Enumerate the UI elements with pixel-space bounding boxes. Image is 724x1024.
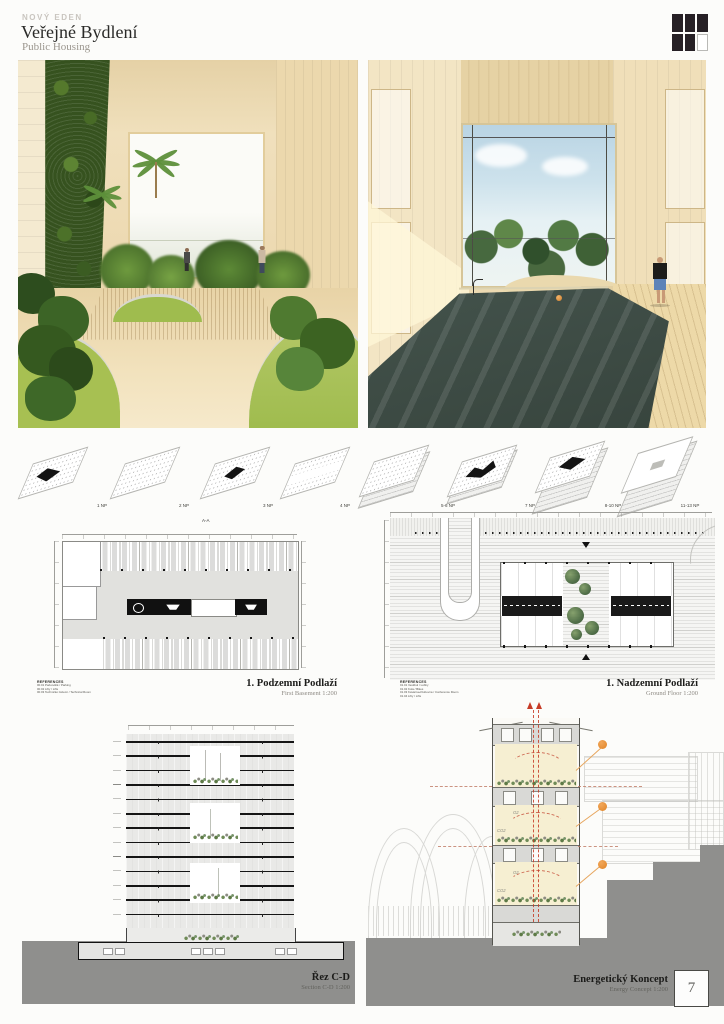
axon-floor-7 <box>435 448 525 506</box>
axon-label: 7 NP <box>525 503 535 508</box>
axon-floor-3 <box>188 450 278 508</box>
co2-label: CO2 <box>497 888 506 893</box>
o2-label: O2 <box>513 810 519 815</box>
person-figure <box>258 246 267 274</box>
render-atrium-garden <box>18 60 358 428</box>
palm-tree <box>100 192 126 222</box>
core-block <box>611 596 671 616</box>
section-title: Řez C-D <box>200 972 350 983</box>
axon-floor-5-6 <box>347 448 437 506</box>
dimension-line <box>62 534 297 539</box>
energy-node-marker <box>598 740 607 749</box>
dimension-line <box>301 541 306 668</box>
section-subtitle: Section C-D 1:200 <box>200 984 350 991</box>
axon-label: 11-13 NP <box>681 503 700 508</box>
axon-floor-1 <box>6 450 96 508</box>
section-title-block: Řez C-D Section C-D 1:200 <box>200 972 350 991</box>
sheet-number: 7 <box>688 980 696 996</box>
basement-plan-drawing <box>62 541 299 670</box>
entrance-arrow <box>582 654 590 660</box>
axon-label: 5-6 NP <box>441 503 455 508</box>
dimension-line <box>54 541 59 668</box>
render-pool-hall <box>368 60 706 428</box>
co2-label: CO2 <box>497 828 506 833</box>
dimension-line <box>384 520 389 678</box>
presentation-board: NOVÝ EDEN Veřejné Bydlení Public Housing <box>0 0 724 1024</box>
section-basement-slab <box>78 942 344 960</box>
level-marks <box>113 741 121 921</box>
person-figure <box>183 248 191 271</box>
axon-floor-4 <box>268 450 358 508</box>
section-ground-floor <box>126 928 296 942</box>
basement-plan-title-block: 1. Podzemní Podlaží First Basement 1:200 <box>187 678 337 697</box>
entrance-arrow <box>582 542 590 548</box>
exhaust-arrow-icon <box>527 702 533 709</box>
page-title: Veřejné Bydlení <box>21 22 137 43</box>
energy-title-block: Energetický Koncept Energy Concept 1:200 <box>518 974 668 993</box>
pool-handrail-icon <box>473 279 483 295</box>
core-block <box>127 599 191 615</box>
axon-label: 2 NP <box>179 503 189 508</box>
axon-floor-11-13 <box>610 440 700 498</box>
energy-node-marker <box>598 802 607 811</box>
dimension-line <box>390 512 712 517</box>
ground-plan-drawing <box>390 518 715 680</box>
energy-subtitle: Energy Concept 1:200 <box>518 986 668 993</box>
energy-node-marker <box>598 860 607 869</box>
atrium-void <box>190 746 240 785</box>
axon-label: 1 NP <box>97 503 107 508</box>
palm-tree <box>154 159 184 199</box>
atrium-zone <box>495 805 577 845</box>
plan-title: 1. Nadzemní Podlaží <box>548 678 698 689</box>
sheet-number-box: 7 <box>674 970 709 1007</box>
axon-floor-8-10 <box>523 444 613 502</box>
axon-floor-2 <box>98 450 188 508</box>
plan-title: 1. Podzemní Podlaží <box>187 678 337 689</box>
ground-plan-title-block: 1. Nadzemní Podlaží Ground Floor 1:200 <box>548 678 698 697</box>
axon-label: 4 NP <box>340 503 350 508</box>
project-label: NOVÝ EDEN <box>22 13 83 22</box>
core-block <box>235 599 267 615</box>
atrium-zone <box>495 744 577 787</box>
studio-logo-icon <box>672 14 708 51</box>
atrium-zone <box>495 862 577 905</box>
pool-window <box>461 123 617 289</box>
references-block: REFERENCES 01.01 Vestibul / Lobby 01.02 … <box>400 680 520 698</box>
page-subtitle: Public Housing <box>22 41 90 53</box>
pool-ball <box>556 295 562 301</box>
section-marker: A-A <box>202 518 210 523</box>
references-block: REFERENCES 00.01 Parkoviště / Parking 00… <box>37 680 157 695</box>
energy-title: Energetický Koncept <box>518 974 668 985</box>
building-footprint <box>500 562 674 647</box>
atrium-void <box>190 803 240 843</box>
person-figure <box>652 257 668 309</box>
o2-label: O2 <box>513 870 519 875</box>
plan-subtitle: First Basement 1:200 <box>187 690 337 697</box>
atrium-void <box>190 863 240 903</box>
green-living-wall <box>45 60 110 292</box>
exhaust-arrow-icon <box>536 702 542 709</box>
core-block <box>502 596 562 616</box>
dimension-line <box>128 725 294 730</box>
axon-label: 3 NP <box>263 503 273 508</box>
plan-subtitle: Ground Floor 1:200 <box>548 690 698 697</box>
section-tower <box>126 734 294 942</box>
axon-label: 8-10 NP <box>605 503 622 508</box>
window-trees <box>463 199 615 286</box>
